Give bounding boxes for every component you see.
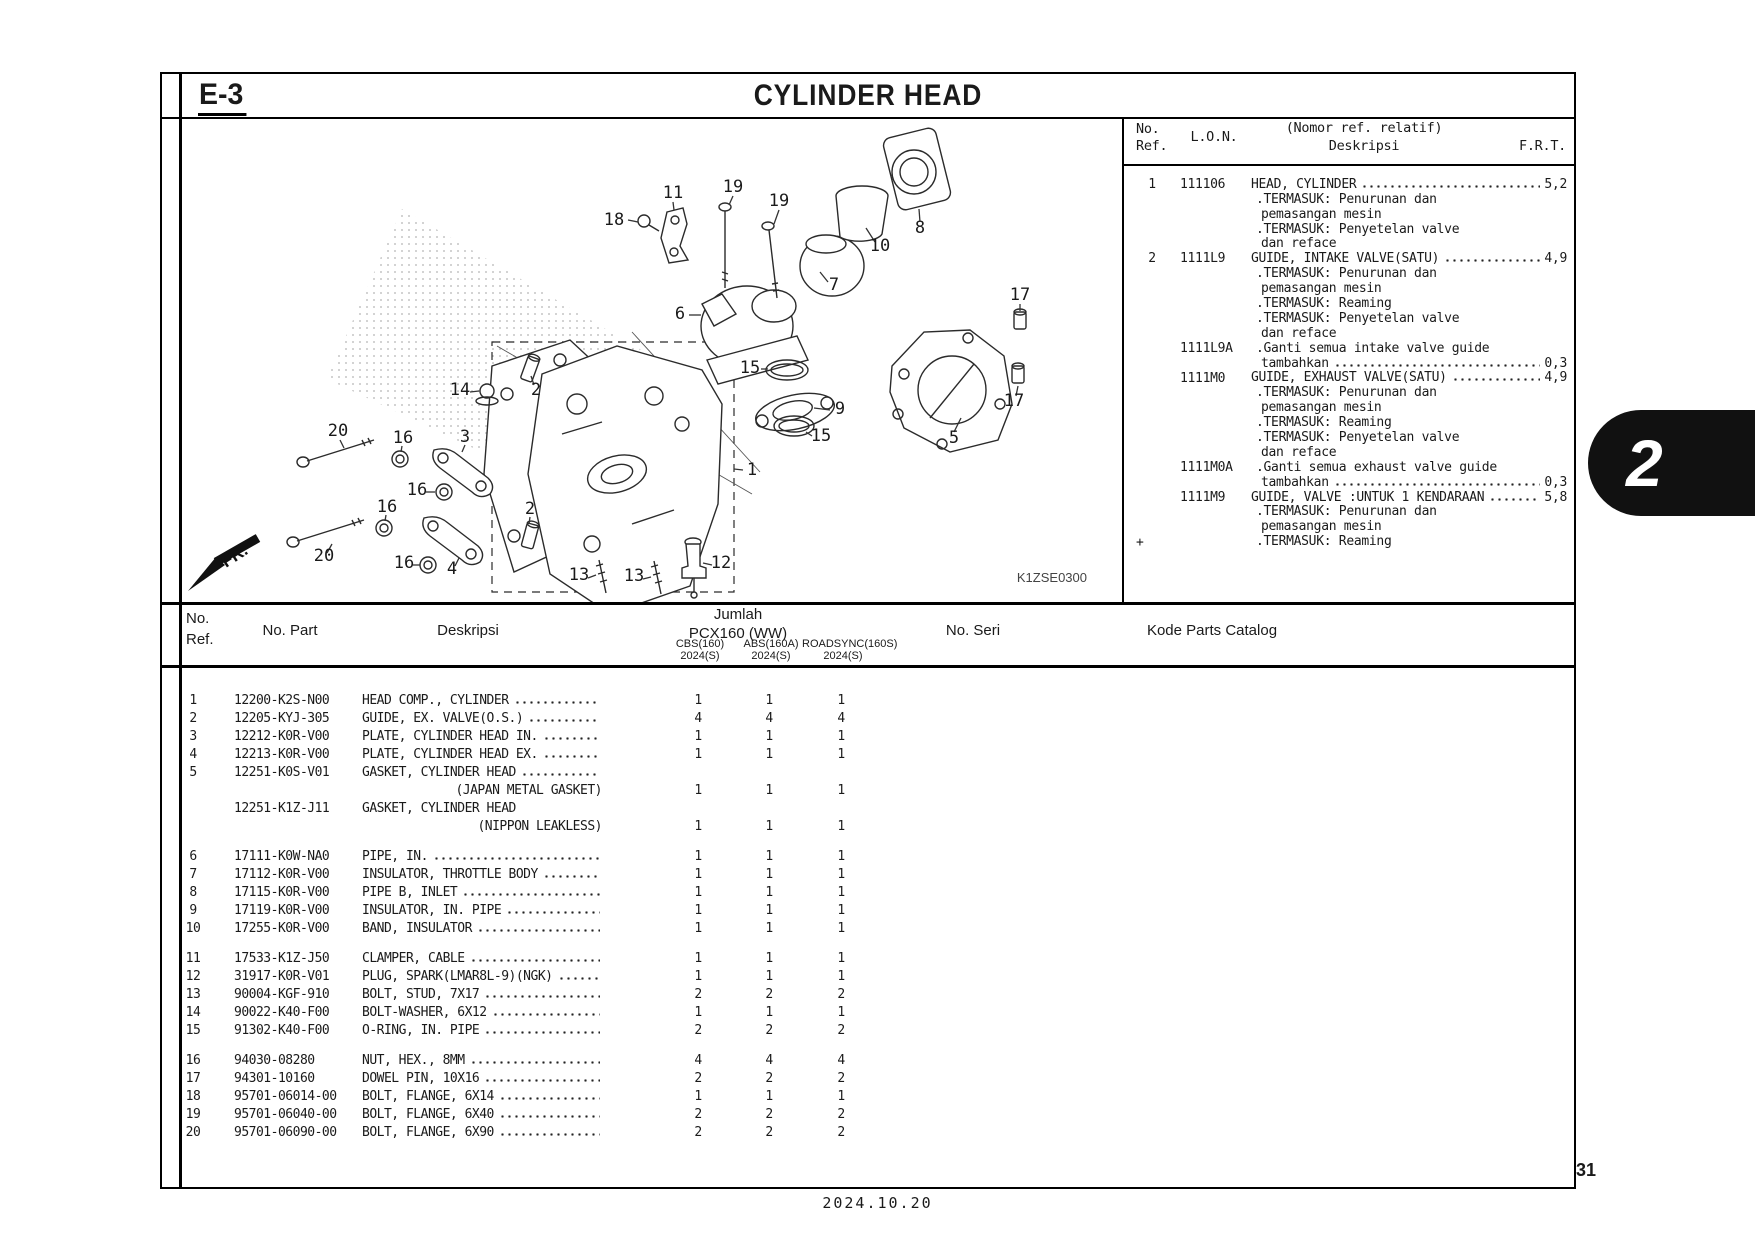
lon-line: .TERMASUK: Penyetelan valve: [1124, 222, 1567, 237]
lon-header-frt: F.R.T.: [1519, 138, 1566, 154]
diagram-callout: 1: [747, 460, 757, 480]
diagram-callout: 20: [314, 546, 334, 566]
lon-panel-header: No. Ref. L.O.N. (Nomor ref. relatif) Des…: [1124, 117, 1574, 166]
diagram-callout: 17: [1004, 391, 1024, 411]
diagram-callout: 13: [624, 566, 644, 586]
lon-line: 1111M9GUIDE, VALVE :UNTUK 1 KENDARAAN5,8: [1124, 490, 1567, 505]
lon-header-ref: No.: [1136, 121, 1159, 137]
callout-leader: [734, 469, 743, 470]
parts-table: No. Ref. No. Part Deskripsi Jumlah PCX16…: [162, 602, 1574, 1187]
diagram-callout: 20: [328, 421, 348, 441]
lon-line: .TERMASUK: Penyetelan valve: [1124, 430, 1567, 445]
band-art: [836, 186, 888, 241]
diagram-callout: 2: [531, 380, 541, 400]
catalog-page: E-3 CYLINDER HEAD: [0, 0, 1755, 1241]
dowel-pin-art: [1012, 309, 1026, 383]
table-row-line: 1231917-K0R-V01PLUG, SPARK(LMAR8L-9)(NGK…: [162, 966, 1574, 984]
callout-leader: [673, 202, 674, 210]
table-row-line: 312212-K0R-V00PLATE, CYLINDER HEAD IN.11…: [162, 726, 1574, 744]
table-row-line: 917119-K0R-V00INSULATOR, IN. PIPE111: [162, 900, 1574, 918]
lon-line: dan reface: [1124, 326, 1567, 341]
lon-line: 1111L9A.Ganti semua intake valve guide: [1124, 341, 1567, 356]
lon-header-desc1: (Nomor ref. relatif): [1254, 120, 1474, 136]
table-row: 1117533-K1Z-J50CLAMPER, CABLE111: [162, 948, 1574, 966]
table-row: 617111-K0W-NA0PIPE, IN.111: [162, 846, 1574, 864]
table-row-line: 412213-K0R-V00PLATE, CYLINDER HEAD EX.11…: [162, 744, 1574, 762]
lon-line: .TERMASUK: Penurunan dan: [1124, 192, 1567, 207]
diagram-callout: 11: [663, 183, 683, 203]
diagram-callout: 18: [604, 210, 624, 230]
flange-bolt-art: [719, 203, 779, 298]
table-row: 312212-K0R-V00PLATE, CYLINDER HEAD IN.11…: [162, 726, 1574, 744]
callout-leader: [774, 210, 779, 224]
diagram-callout: 15: [811, 426, 831, 446]
lon-line: pemasangan mesin: [1124, 207, 1567, 222]
plate-art: [423, 449, 493, 565]
table-row-line: 1694030-08280NUT, HEX., 8MM444: [162, 1050, 1574, 1068]
table-row: 917119-K0R-V00INSULATOR, IN. PIPE111: [162, 900, 1574, 918]
lon-line: dan reface: [1124, 237, 1567, 252]
inlet-pipe-art: [882, 127, 952, 212]
lon-line: tambahkan0,3: [1124, 475, 1567, 490]
diagram-callout: 3: [460, 427, 470, 447]
lon-line: .TERMASUK: Reaming: [1124, 415, 1567, 430]
screw-art: [638, 215, 659, 231]
diagram-callout: 16: [377, 497, 397, 517]
lon-panel-body: 1111106HEAD, CYLINDER5,2.TERMASUK: Penur…: [1124, 177, 1567, 549]
bracket-art: [661, 208, 688, 263]
lon-line: .TERMASUK: Penurunan dan: [1124, 505, 1567, 520]
table-row-line: 817115-K0R-V00PIPE B, INLET111: [162, 882, 1574, 900]
diagram-callout: 7: [829, 275, 839, 295]
table-row-line: 717112-K0R-V00INSULATOR, THROTTLE BODY11…: [162, 864, 1574, 882]
diagram-callout: 15: [740, 358, 760, 378]
footnote-mark: +: [1136, 535, 1144, 550]
diagram-callout: 4: [447, 559, 457, 579]
diagram-line-art: [188, 127, 1026, 602]
table-row-line: 1117533-K1Z-J50CLAMPER, CABLE111: [162, 948, 1574, 966]
table-row-line: 1995701-06040-00BOLT, FLANGE, 6X40222: [162, 1104, 1574, 1122]
lon-line: tambahkan0,3: [1124, 356, 1567, 371]
diagram-callout: 5: [949, 428, 959, 448]
footer-date: 2024.10.20: [0, 1194, 1755, 1212]
table-row: 1694030-08280NUT, HEX., 8MM444: [162, 1050, 1574, 1068]
lon-line: dan reface: [1124, 445, 1567, 460]
table-row: 1231917-K0R-V01PLUG, SPARK(LMAR8L-9)(NGK…: [162, 966, 1574, 984]
table-row-line: 1390004-KGF-910BOLT, STUD, 7X17222: [162, 984, 1574, 1002]
diagram-code: K1ZSE0300: [1017, 570, 1087, 585]
lon-header-desc2: Deskripsi: [1254, 138, 1474, 154]
diagram-callout: 19: [723, 177, 743, 197]
lon-line: .TERMASUK: Reaming: [1124, 296, 1567, 311]
exploded-diagram: 1811191910876159151171752142016316162201…: [162, 117, 1122, 602]
table-row-line: 12251-K1Z-J11GASKET, CYLINDER HEAD: [162, 798, 1574, 816]
lon-line: pemasangan mesin: [1124, 519, 1567, 534]
diagram-callout: 6: [675, 304, 685, 324]
table-row-line: 2095701-06090-00BOLT, FLANGE, 6X90222: [162, 1122, 1574, 1140]
lon-line: 21111L9GUIDE, INTAKE VALVE(SATU)4,9: [1124, 251, 1567, 266]
diagram-callout: 12: [711, 553, 731, 573]
table-row-line: 512251-K0S-V01GASKET, CYLINDER HEAD: [162, 762, 1574, 780]
diagram-callout: 16: [394, 553, 414, 573]
table-row: 1017255-K0R-V00BAND, INSULATOR111: [162, 918, 1574, 936]
table-row: 1390004-KGF-910BOLT, STUD, 7X17222: [162, 984, 1574, 1002]
table-row-line: 617111-K0W-NA0PIPE, IN.111: [162, 846, 1574, 864]
lon-line: 1111106HEAD, CYLINDER5,2: [1124, 177, 1567, 192]
table-row: 1591302-K40-F00O-RING, IN. PIPE222: [162, 1020, 1574, 1038]
diagram-callout: 2: [525, 499, 535, 519]
lon-line: .TERMASUK: Penurunan dan: [1124, 385, 1567, 400]
lon-line: .TERMASUK: Penyetelan valve: [1124, 311, 1567, 326]
diagram-callout: 16: [407, 480, 427, 500]
catalog-sheet: E-3 CYLINDER HEAD: [160, 72, 1576, 1189]
lon-header-lon: L.O.N.: [1176, 129, 1252, 145]
table-row-line: 1794301-10160DOWEL PIN, 10X16222: [162, 1068, 1574, 1086]
lon-line: 1111M0GUIDE, EXHAUST VALVE(SATU)4,9: [1124, 371, 1567, 386]
diagram-callout: 17: [1010, 285, 1030, 305]
lon-panel: No. Ref. L.O.N. (Nomor ref. relatif) Des…: [1122, 117, 1574, 602]
table-row: 1995701-06040-00BOLT, FLANGE, 6X40222: [162, 1104, 1574, 1122]
diagram-callout: 19: [769, 191, 789, 211]
table-row: 717112-K0R-V00INSULATOR, THROTTLE BODY11…: [162, 864, 1574, 882]
diagram-callout: 9: [835, 399, 845, 419]
table-row-line: 112200-K2S-N00HEAD COMP., CYLINDER111: [162, 690, 1574, 708]
diagram-callout: 8: [915, 218, 925, 238]
page-header: E-3 CYLINDER HEAD: [162, 74, 1574, 119]
table-row: 817115-K0R-V00PIPE B, INLET111: [162, 882, 1574, 900]
callout-leader: [628, 220, 638, 222]
chapter-tab: 2: [1588, 410, 1755, 516]
page-title: CYLINDER HEAD: [247, 79, 1490, 113]
diagram-callout: 14: [450, 380, 470, 400]
lon-line: pemasangan mesin: [1124, 400, 1567, 415]
page-number: 31: [1576, 1160, 1596, 1181]
table-row-line: 1895701-06014-00BOLT, FLANGE, 6X14111: [162, 1086, 1574, 1104]
parts-table-body: 112200-K2S-N00HEAD COMP., CYLINDER111212…: [162, 608, 1574, 1140]
callout-leader: [340, 440, 344, 448]
table-row: 112200-K2S-N00HEAD COMP., CYLINDER111: [162, 690, 1574, 708]
table-row-line: 1017255-K0R-V00BAND, INSULATOR111: [162, 918, 1574, 936]
table-row-line: 1591302-K40-F00O-RING, IN. PIPE222: [162, 1020, 1574, 1038]
table-row: 12251-K1Z-J11GASKET, CYLINDER HEAD(NIPPO…: [162, 798, 1574, 834]
table-row: 1490022-K40-F00BOLT-WASHER, 6X12111: [162, 1002, 1574, 1020]
section-code: E-3: [198, 78, 246, 116]
table-row-line: (JAPAN METAL GASKET)111: [162, 780, 1574, 798]
table-row: 2095701-06090-00BOLT, FLANGE, 6X90222: [162, 1122, 1574, 1140]
diagram-callout: 16: [393, 428, 413, 448]
lon-line: pemasangan mesin: [1124, 281, 1567, 296]
callout-leader: [729, 196, 733, 205]
table-row: 212205-KYJ-305GUIDE, EX. VALVE(O.S.)444: [162, 708, 1574, 726]
table-row-line: 212205-KYJ-305GUIDE, EX. VALVE(O.S.)444: [162, 708, 1574, 726]
lon-line: .TERMASUK: Reaming: [1124, 534, 1567, 549]
table-row: 512251-K0S-V01GASKET, CYLINDER HEAD(JAPA…: [162, 762, 1574, 798]
lon-line: 1111M0A.Ganti semua exhaust valve guide: [1124, 460, 1567, 475]
table-row: 412213-K0R-V00PLATE, CYLINDER HEAD EX.11…: [162, 744, 1574, 762]
lon-header-ref2: Ref.: [1136, 138, 1167, 154]
table-row: 1794301-10160DOWEL PIN, 10X16222: [162, 1068, 1574, 1086]
table-row-line: 1490022-K40-F00BOLT-WASHER, 6X12111: [162, 1002, 1574, 1020]
table-row: 1895701-06014-00BOLT, FLANGE, 6X14111: [162, 1086, 1574, 1104]
long-bolt-art: [287, 438, 374, 547]
lon-line: .TERMASUK: Penurunan dan: [1124, 266, 1567, 281]
table-row-line: (NIPPON LEAKLESS)111: [162, 816, 1574, 834]
diagram-callout: 10: [870, 236, 890, 256]
diagram-callout: 13: [569, 565, 589, 585]
diagram-svg: 1811191910876159151171752142016316162201…: [162, 117, 1120, 602]
